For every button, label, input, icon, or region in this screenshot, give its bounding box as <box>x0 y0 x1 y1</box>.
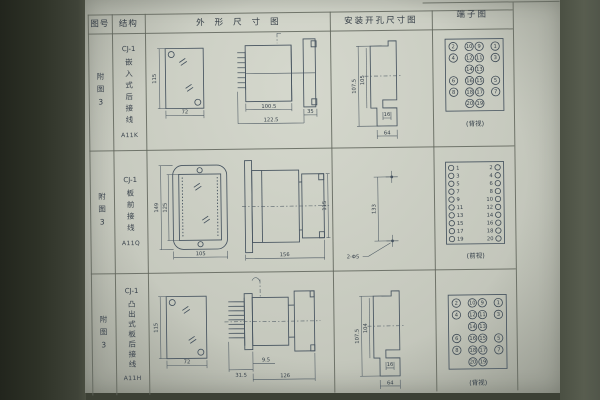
svg-text:115: 115 <box>152 74 158 84</box>
photo-background: 图号 结构 外形尺寸图 安装开孔尺寸图 端子图 附图3 CJ-1 嵌入式后接线 … <box>0 0 600 400</box>
svg-text:13: 13 <box>476 67 483 73</box>
svg-text:7: 7 <box>456 189 459 195</box>
relay-model: CJ-1 <box>123 176 137 184</box>
structure-cell-row1: CJ-1 嵌入式后接线 A11K <box>112 33 146 150</box>
svg-text:1: 1 <box>456 166 459 172</box>
svg-text:122.5: 122.5 <box>264 117 279 123</box>
svg-text:4: 4 <box>455 312 459 318</box>
svg-text:115: 115 <box>153 323 159 333</box>
svg-text:104: 104 <box>363 323 369 334</box>
terminal-diagram-row3: 2109141211314136161558181772019 (背视) <box>435 268 518 398</box>
svg-text:8: 8 <box>490 189 493 195</box>
svg-text:107.5: 107.5 <box>355 329 361 344</box>
svg-text:4: 4 <box>489 173 493 179</box>
svg-text:7: 7 <box>494 89 497 95</box>
structure-code: A11K <box>121 131 138 138</box>
svg-text:7: 7 <box>497 347 500 353</box>
install-drawing-row1: 107.5 105 16 64 <box>330 29 433 147</box>
svg-text:17: 17 <box>476 89 483 95</box>
svg-text:72: 72 <box>182 109 189 115</box>
svg-text:105: 105 <box>196 251 206 257</box>
spec-table: 图号 结构 外形尺寸图 安装开孔尺寸图 端子图 附图3 CJ-1 嵌入式后接线 … <box>0 0 600 400</box>
svg-text:3: 3 <box>456 173 459 179</box>
screw-mark-icon <box>194 183 202 190</box>
svg-text:16: 16 <box>469 336 476 342</box>
svg-text:5: 5 <box>494 78 497 84</box>
terminal-grid: 2109141211314136161558181772019 <box>449 42 500 108</box>
relay-model: CJ-1 <box>122 44 136 52</box>
svg-text:3: 3 <box>494 55 497 61</box>
svg-text:11: 11 <box>457 205 464 211</box>
svg-text:15: 15 <box>476 78 483 84</box>
svg-text:133: 133 <box>372 204 378 214</box>
svg-text:14: 14 <box>466 67 473 73</box>
column-header-outline: 外形尺寸图 <box>145 15 330 29</box>
svg-text:31.5: 31.5 <box>235 373 247 379</box>
terminal-diagram-row2: 1234567891011121314151617181920 (前视) <box>433 145 515 269</box>
outline-drawing-row3: 115 72 31.5 9.5 126 <box>148 271 335 400</box>
svg-text:16: 16 <box>487 220 494 226</box>
svg-text:14: 14 <box>469 324 476 330</box>
svg-text:15: 15 <box>457 221 464 227</box>
svg-text:13: 13 <box>479 324 486 330</box>
screw-mark-icon <box>186 84 194 91</box>
terminal-grid: 2109141211314136161558181772019 <box>452 298 503 366</box>
relay-model: CJ-1 <box>125 286 139 294</box>
screw-mark-icon <box>202 216 210 223</box>
side-view: 31.5 9.5 126 <box>224 277 321 382</box>
svg-text:19: 19 <box>476 101 483 107</box>
svg-text:18: 18 <box>466 90 473 96</box>
svg-text:8: 8 <box>455 348 458 354</box>
figure-cell-row1: 附图3 <box>88 33 113 150</box>
svg-text:100.5: 100.5 <box>261 104 276 110</box>
svg-text:156: 156 <box>280 252 290 258</box>
terminal-pairs: 1234567891011121314151617181920 <box>448 165 501 243</box>
svg-text:5: 5 <box>497 336 500 342</box>
install-view: 133 2-Φ5 <box>346 171 399 261</box>
figure-cell-row3: 附图3 <box>91 273 116 395</box>
svg-text:9: 9 <box>481 300 484 306</box>
install-drawing-row2: 133 2-Φ5 <box>331 146 434 270</box>
column-header-install: 安装开孔尺寸图 <box>330 13 432 26</box>
svg-text:107.5: 107.5 <box>352 79 358 94</box>
screw-mark-icon <box>182 306 190 313</box>
structure-code: A11Q <box>122 240 140 247</box>
svg-text:105: 105 <box>360 75 366 85</box>
front-view: 115 72 <box>152 48 204 119</box>
structure-code: A11H <box>124 374 142 381</box>
svg-text:11: 11 <box>476 55 483 61</box>
svg-text:10: 10 <box>469 300 476 306</box>
svg-text:12: 12 <box>486 205 493 211</box>
svg-text:20: 20 <box>466 101 473 107</box>
structure-cell-row2: CJ-1 板前接线 A11Q <box>113 150 148 273</box>
svg-text:18: 18 <box>487 228 494 234</box>
screw-mark-icon <box>179 58 187 65</box>
column-header-figure: 图号 <box>88 17 112 29</box>
svg-text:2: 2 <box>451 44 454 50</box>
structure-type: 板前接线 <box>125 189 137 235</box>
svg-text:64: 64 <box>387 380 394 386</box>
install-view: 107.5 104 16 64 <box>354 291 406 390</box>
svg-text:12: 12 <box>469 312 476 318</box>
svg-text:11: 11 <box>479 312 486 318</box>
view-label: (前视) <box>467 251 485 260</box>
svg-text:115: 115 <box>322 201 328 211</box>
svg-text:1: 1 <box>493 44 496 50</box>
side-view: 100.5 35 122.5 <box>237 33 317 124</box>
svg-text:2: 2 <box>489 165 492 171</box>
outline-drawing-row1: 115 72 100.5 35 122.5 <box>145 31 331 150</box>
figure-number: 附图3 <box>98 315 109 354</box>
svg-text:9.5: 9.5 <box>262 357 270 363</box>
svg-text:16: 16 <box>466 78 473 84</box>
svg-text:16: 16 <box>387 362 394 368</box>
svg-text:20: 20 <box>470 359 477 365</box>
figure-number: 附图3 <box>96 192 107 231</box>
svg-text:3: 3 <box>497 312 500 318</box>
svg-text:2: 2 <box>455 301 458 307</box>
svg-text:6: 6 <box>489 181 492 187</box>
figure-cell-row2: 附图3 <box>89 150 115 273</box>
svg-text:4: 4 <box>452 56 456 62</box>
column-header-structure: 结构 <box>112 17 145 29</box>
svg-text:35: 35 <box>307 109 314 115</box>
svg-text:15: 15 <box>479 336 486 342</box>
svg-text:125: 125 <box>163 203 169 213</box>
svg-text:2-Φ5: 2-Φ5 <box>347 254 360 260</box>
view-label: (背视) <box>466 119 484 128</box>
front-view: 149 125 105 <box>154 165 228 260</box>
svg-text:1: 1 <box>497 300 500 306</box>
terminal-diagram-row1: 2109141211314136161558181772019 (背视) <box>432 28 514 146</box>
svg-text:5: 5 <box>456 181 459 187</box>
structure-type: 凸出式板后接线 <box>126 299 138 369</box>
svg-text:9: 9 <box>477 44 480 50</box>
svg-text:12: 12 <box>466 55 473 61</box>
front-view: 115 72 <box>153 296 207 369</box>
svg-text:10: 10 <box>466 44 473 50</box>
svg-text:64: 64 <box>384 130 391 136</box>
figure-number: 附图3 <box>95 72 106 111</box>
table-border <box>423 1 560 4</box>
svg-text:149: 149 <box>154 203 160 213</box>
svg-text:6: 6 <box>452 78 455 84</box>
side-view: 156 115 <box>242 160 331 261</box>
column-header-terminal: 端子图 <box>432 7 513 20</box>
svg-text:18: 18 <box>470 348 477 354</box>
structure-type: 嵌入式后接线 <box>123 58 135 127</box>
install-drawing-row3: 107.5 104 16 64 <box>333 269 437 399</box>
svg-text:13: 13 <box>457 213 464 219</box>
structure-cell-row3: CJ-1 凸出式板后接线 A11H <box>115 273 149 395</box>
svg-text:16: 16 <box>384 112 391 118</box>
svg-text:126: 126 <box>280 373 290 379</box>
partial-cutoff-text <box>450 0 490 3</box>
svg-text:17: 17 <box>457 229 464 235</box>
svg-text:8: 8 <box>452 90 455 96</box>
outline-drawing-row2: 149 125 105 156 115 <box>146 148 332 273</box>
svg-text:6: 6 <box>455 336 458 342</box>
svg-text:17: 17 <box>480 348 487 354</box>
svg-text:72: 72 <box>184 359 191 365</box>
svg-text:14: 14 <box>487 213 494 219</box>
svg-text:10: 10 <box>486 197 493 203</box>
install-view: 107.5 105 16 64 <box>351 41 403 140</box>
svg-text:9: 9 <box>456 197 459 203</box>
screw-mark-icon <box>189 336 197 343</box>
svg-text:19: 19 <box>457 237 464 243</box>
svg-text:20: 20 <box>487 236 494 242</box>
view-label: (背视) <box>469 378 487 387</box>
svg-text:19: 19 <box>480 359 487 365</box>
